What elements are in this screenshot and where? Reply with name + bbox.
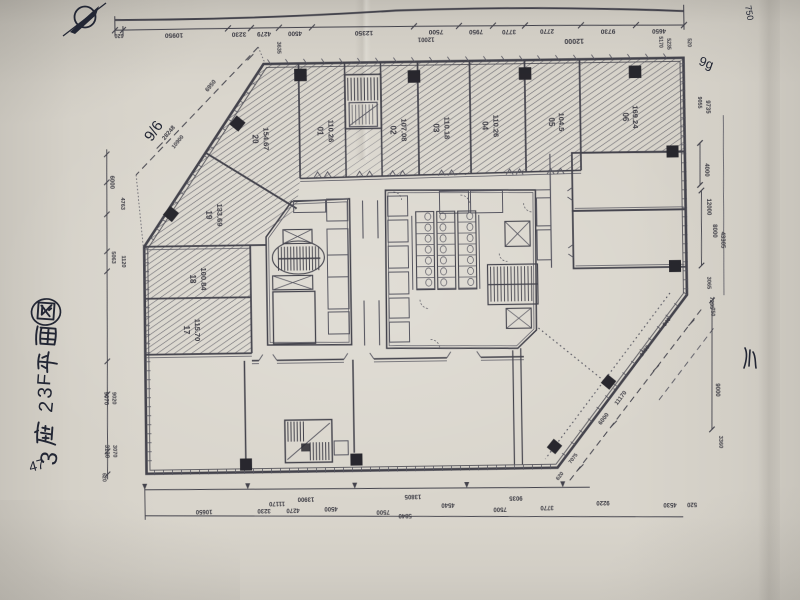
svg-text:3230: 3230 [231, 30, 246, 37]
svg-text:620: 620 [101, 473, 107, 482]
svg-text:4540: 4540 [441, 501, 455, 507]
svg-text:9/6: 9/6 [141, 118, 167, 145]
svg-text:9070: 9070 [102, 392, 108, 406]
svg-text:9035: 9035 [509, 494, 523, 500]
svg-text:9055: 9055 [696, 96, 702, 108]
svg-text:5063: 5063 [110, 251, 116, 264]
svg-text:750: 750 [743, 5, 755, 22]
svg-text:169.24: 169.24 [631, 105, 640, 129]
svg-text:9730: 9730 [600, 27, 615, 34]
svg-text:43305: 43305 [719, 232, 725, 249]
svg-text:2770: 2770 [539, 27, 554, 34]
svg-text:620: 620 [114, 32, 123, 38]
svg-text:110.18: 110.18 [442, 117, 451, 140]
svg-text:4530: 4530 [663, 501, 677, 507]
svg-text:520: 520 [686, 38, 692, 47]
svg-text:5235: 5235 [665, 38, 671, 50]
svg-text:12000: 12000 [705, 199, 711, 216]
svg-text:4270: 4270 [286, 507, 300, 513]
svg-text:3070: 3070 [111, 445, 117, 458]
svg-text:7500: 7500 [493, 505, 507, 511]
svg-text:9020: 9020 [110, 392, 116, 405]
svg-text:01: 01 [315, 127, 324, 137]
svg-text:9000: 9000 [714, 383, 720, 397]
svg-text:3635: 3635 [275, 42, 281, 54]
svg-text:3770: 3770 [501, 28, 516, 35]
svg-text:9220: 9220 [596, 499, 610, 505]
svg-text:13805: 13805 [404, 493, 421, 499]
svg-text:7950: 7950 [468, 28, 483, 35]
svg-text:154.67: 154.67 [261, 127, 270, 150]
svg-text:5840: 5840 [398, 512, 412, 518]
svg-text:04: 04 [480, 121, 489, 131]
svg-text:6000: 6000 [108, 176, 114, 190]
svg-text:1120: 1120 [120, 255, 126, 267]
svg-text:3770: 3770 [540, 504, 554, 510]
svg-text:03: 03 [431, 123, 440, 133]
svg-text:3360: 3360 [717, 436, 723, 449]
svg-text:F: F [34, 373, 56, 386]
svg-text:20: 20 [251, 135, 260, 145]
svg-text:3130: 3130 [103, 445, 109, 459]
svg-text:7500: 7500 [428, 28, 443, 35]
svg-text:4500: 4500 [287, 29, 302, 36]
svg-text:540: 540 [662, 317, 672, 328]
svg-text:17: 17 [182, 325, 191, 335]
svg-text:19: 19 [204, 210, 213, 220]
svg-text:104.5: 104.5 [557, 113, 566, 132]
svg-text:750: 750 [709, 308, 715, 317]
svg-text:133.69: 133.69 [215, 203, 224, 226]
svg-text:13900: 13900 [297, 495, 314, 501]
svg-text:7500: 7500 [376, 508, 390, 514]
svg-text:10900: 10900 [171, 134, 185, 150]
svg-text:4279: 4279 [256, 30, 271, 37]
svg-text:4763: 4763 [119, 197, 125, 210]
svg-text:100.84: 100.84 [199, 267, 208, 291]
svg-text:12350: 12350 [354, 29, 373, 36]
svg-text:12000: 12000 [564, 37, 584, 44]
svg-text:11170: 11170 [268, 500, 285, 506]
svg-text:11170: 11170 [614, 390, 629, 407]
svg-text:6000: 6000 [598, 412, 611, 427]
svg-text:9735: 9735 [704, 100, 710, 114]
svg-text:06: 06 [621, 112, 630, 122]
svg-text:107.08: 107.08 [399, 118, 408, 141]
svg-text:3230: 3230 [257, 507, 271, 513]
svg-text:110.26: 110.26 [491, 115, 500, 138]
svg-text:9g: 9g [697, 53, 716, 72]
svg-text:05: 05 [547, 117, 556, 127]
svg-text:110.26: 110.26 [326, 120, 335, 143]
svg-text:4650: 4650 [651, 27, 666, 34]
svg-text:02: 02 [388, 126, 397, 136]
svg-text:4000: 4000 [703, 163, 709, 177]
svg-text:8000: 8000 [711, 224, 717, 238]
svg-text:10650: 10650 [195, 508, 212, 514]
svg-text:3065: 3065 [705, 277, 711, 290]
svg-text:115.70: 115.70 [193, 319, 202, 342]
svg-text:4500: 4500 [324, 505, 338, 511]
svg-text:2: 2 [35, 400, 58, 413]
svg-text:3: 3 [34, 386, 57, 399]
svg-text:7075: 7075 [568, 452, 580, 465]
svg-text:5170: 5170 [657, 36, 663, 48]
svg-text:18: 18 [188, 274, 197, 284]
svg-text:520: 520 [686, 501, 697, 507]
svg-text:10950: 10950 [164, 31, 183, 38]
svg-text:620: 620 [555, 471, 565, 482]
svg-text:12001: 12001 [417, 35, 434, 41]
